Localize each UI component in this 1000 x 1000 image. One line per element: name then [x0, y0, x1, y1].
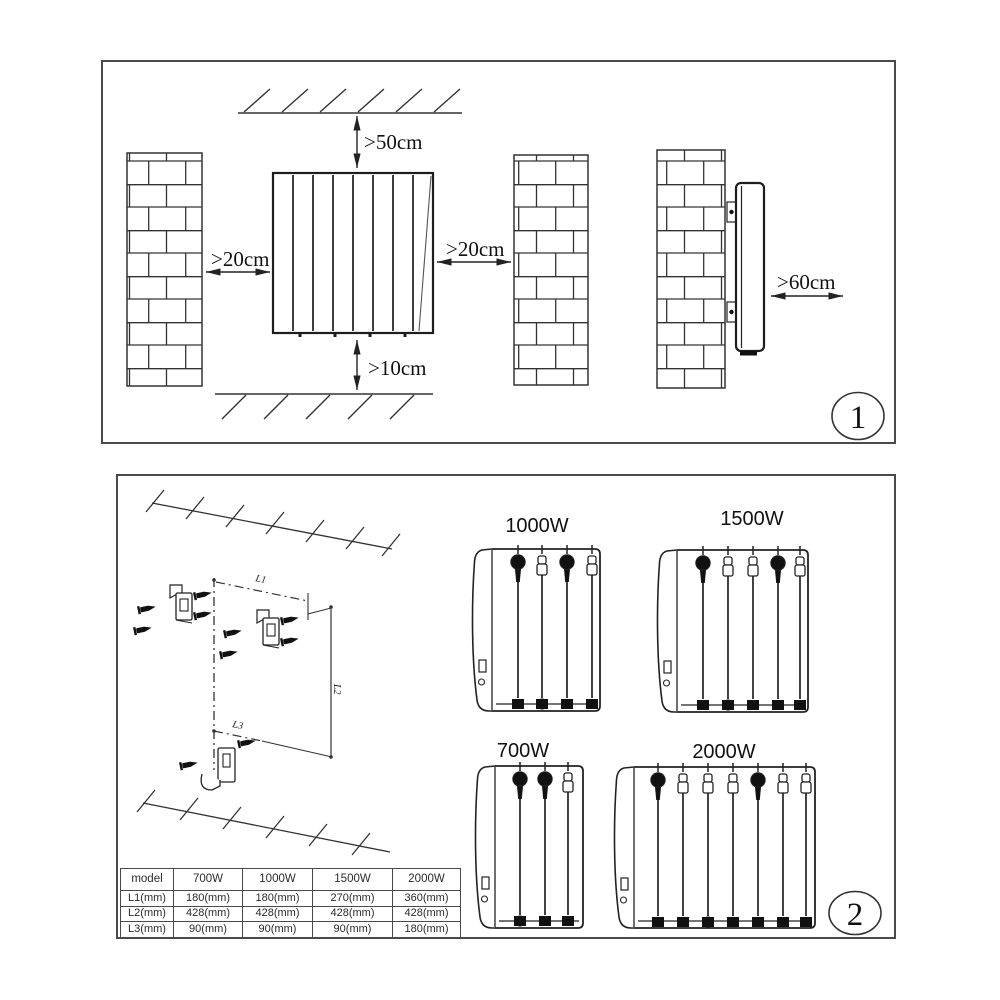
radiator-700w — [475, 762, 583, 928]
figure-1-badge: 1 — [832, 393, 884, 440]
table-cell: 428(mm) — [174, 906, 243, 922]
table-header-row: model 700W 1000W 1500W 2000W — [121, 869, 461, 891]
table-cell: 180(mm) — [393, 922, 461, 938]
model-label-2000w: 2000W — [692, 741, 755, 763]
table-cell: 180(mm) — [174, 891, 243, 907]
bottom-clearance-label: >10cm — [368, 356, 427, 380]
front-clearance-label: >60cm — [777, 270, 836, 294]
figure-2-number: 2 — [847, 897, 864, 933]
model-label-700w: 700W — [497, 740, 549, 762]
radiator-2000w — [614, 763, 815, 928]
left-clearance-dimension: >20cm — [206, 247, 270, 272]
radiator-1500w — [657, 546, 808, 712]
table-header-model: model — [121, 869, 174, 891]
table-cell: 180(mm) — [243, 891, 313, 907]
table-row-l1: L1(mm) 180(mm) 180(mm) 270(mm) 360(mm) — [121, 891, 461, 907]
radiator-front-view — [273, 173, 433, 337]
table-cell: L1(mm) — [121, 891, 174, 907]
table-row-l2: L2(mm) 428(mm) 428(mm) 428(mm) 428(mm) — [121, 906, 461, 922]
dim-l3-label: L3 — [230, 719, 244, 732]
dimension-table: model 700W 1000W 1500W 2000W L1(mm) 180(… — [120, 868, 461, 938]
left-clearance-label: >20cm — [211, 247, 270, 271]
table-cell: 90(mm) — [313, 922, 393, 938]
table-cell: 270(mm) — [313, 891, 393, 907]
table-cell: 428(mm) — [313, 906, 393, 922]
right-brick-wall — [657, 150, 725, 388]
middle-brick-wall — [514, 155, 588, 385]
table-cell: 360(mm) — [393, 891, 461, 907]
dim-l1-label: L1 — [253, 573, 267, 586]
table-cell: L2(mm) — [121, 906, 174, 922]
table-cell: L3(mm) — [121, 922, 174, 938]
right-clearance-dimension: >20cm — [437, 237, 511, 262]
dim-l2-label: L2 — [331, 683, 342, 695]
table-cell: 428(mm) — [243, 906, 313, 922]
table-header-700w: 700W — [174, 869, 243, 891]
table-cell: 90(mm) — [174, 922, 243, 938]
table-cell: 428(mm) — [393, 906, 461, 922]
table-cell: 90(mm) — [243, 922, 313, 938]
model-label-1000w: 1000W — [505, 515, 568, 537]
top-clearance-label: >50cm — [364, 130, 423, 154]
figure-2-badge: 2 — [829, 892, 881, 935]
manual-page: >50cm >10cm >20cm — [0, 0, 1000, 1000]
radiator-1000w — [472, 545, 600, 711]
diagram-canvas: >50cm >10cm >20cm — [0, 0, 1000, 1000]
panel-1-clearances: >50cm >10cm >20cm — [102, 61, 895, 443]
table-row-l3: L3(mm) 90(mm) 90(mm) 90(mm) 180(mm) — [121, 922, 461, 938]
left-brick-wall — [127, 153, 202, 386]
table-header-1000w: 1000W — [243, 869, 313, 891]
table-header-2000w: 2000W — [393, 869, 461, 891]
model-label-1500w: 1500W — [720, 508, 783, 530]
right-clearance-label: >20cm — [446, 237, 505, 261]
front-clearance-dimension: >60cm — [771, 270, 843, 296]
table-header-1500w: 1500W — [313, 869, 393, 891]
figure-1-number: 1 — [850, 400, 867, 436]
